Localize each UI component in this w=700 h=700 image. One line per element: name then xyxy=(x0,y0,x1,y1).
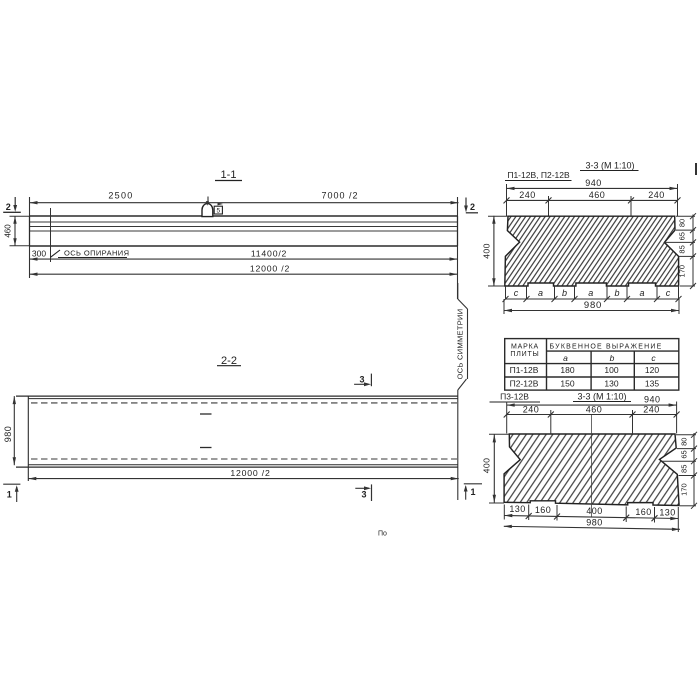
svg-text:240: 240 xyxy=(519,190,536,200)
svg-text:300: 300 xyxy=(32,249,46,259)
svg-text:2: 2 xyxy=(6,202,11,212)
svg-text:980: 980 xyxy=(584,300,602,311)
svg-text:160: 160 xyxy=(535,505,551,515)
svg-text:400: 400 xyxy=(481,458,491,474)
svg-text:240: 240 xyxy=(643,405,660,415)
svg-text:a: a xyxy=(563,353,568,363)
svg-text:По: По xyxy=(378,531,387,538)
svg-text:b: b xyxy=(562,288,567,298)
svg-text:130: 130 xyxy=(509,504,525,514)
svg-text:5: 5 xyxy=(216,208,220,215)
svg-text:1: 1 xyxy=(7,490,12,500)
svg-text:460: 460 xyxy=(586,405,603,415)
svg-text:c: c xyxy=(514,288,519,298)
svg-text:940: 940 xyxy=(585,178,602,188)
svg-text:980: 980 xyxy=(586,517,603,527)
svg-text:b: b xyxy=(610,353,615,363)
svg-text:c: c xyxy=(651,353,656,363)
svg-text:12000 /2: 12000 /2 xyxy=(250,264,290,274)
svg-text:МАРКА: МАРКА xyxy=(511,343,539,350)
svg-text:12000 /2: 12000 /2 xyxy=(230,468,270,478)
svg-text:БУКВЕННОЕ ВЫРАЖЕНИЕ: БУКВЕННОЕ ВЫРАЖЕНИЕ xyxy=(550,343,663,350)
svg-text:a: a xyxy=(588,288,593,298)
svg-text:a: a xyxy=(538,288,543,298)
svg-text:1: 1 xyxy=(470,487,475,497)
svg-text:240: 240 xyxy=(523,405,540,415)
svg-text:3: 3 xyxy=(359,375,364,385)
svg-text:80: 80 xyxy=(678,219,687,227)
svg-text:130: 130 xyxy=(604,378,618,388)
svg-text:170: 170 xyxy=(678,265,687,278)
svg-text:460: 460 xyxy=(589,190,606,200)
svg-text:ОСЬ ОПИРАНИЯ: ОСЬ ОПИРАНИЯ xyxy=(64,249,129,258)
svg-text:100: 100 xyxy=(604,365,618,375)
svg-text:180: 180 xyxy=(560,365,574,375)
svg-text:1-1: 1-1 xyxy=(221,169,237,181)
svg-text:980: 980 xyxy=(3,426,13,443)
svg-text:460: 460 xyxy=(4,224,13,238)
svg-text:170: 170 xyxy=(679,483,688,496)
svg-text:П1-12В: П1-12В xyxy=(510,365,539,375)
svg-text:85: 85 xyxy=(679,465,688,473)
svg-text:160: 160 xyxy=(635,507,651,517)
svg-text:3-3 (М 1:10): 3-3 (М 1:10) xyxy=(577,392,626,402)
svg-text:120: 120 xyxy=(645,365,659,375)
svg-text:240: 240 xyxy=(648,190,665,200)
svg-text:135: 135 xyxy=(645,378,659,388)
svg-text:c: c xyxy=(666,288,671,298)
svg-text:2500: 2500 xyxy=(108,191,133,201)
svg-text:b: b xyxy=(614,288,619,298)
svg-text:400: 400 xyxy=(481,243,491,259)
svg-text:П3-12В: П3-12В xyxy=(500,392,529,402)
svg-text:85: 85 xyxy=(678,245,687,253)
svg-text:11400/2: 11400/2 xyxy=(251,249,287,259)
svg-text:П1-12В, П2-12В: П1-12В, П2-12В xyxy=(507,170,570,180)
svg-text:7000 /2: 7000 /2 xyxy=(321,191,358,201)
svg-text:2: 2 xyxy=(470,202,475,212)
svg-text:130: 130 xyxy=(659,508,675,518)
svg-text:ОСЬ СИММЕТРИИ: ОСЬ СИММЕТРИИ xyxy=(456,309,465,380)
svg-text:80: 80 xyxy=(679,438,688,446)
svg-text:65: 65 xyxy=(678,232,687,240)
svg-text:940: 940 xyxy=(644,394,661,404)
svg-text:ПЛИТЫ: ПЛИТЫ xyxy=(510,351,539,358)
svg-text:П2-12В: П2-12В xyxy=(510,378,539,388)
svg-text:150: 150 xyxy=(560,378,574,388)
svg-text:a: a xyxy=(639,288,644,298)
svg-text:65: 65 xyxy=(679,450,688,458)
svg-text:400: 400 xyxy=(586,506,602,516)
svg-text:3: 3 xyxy=(361,490,366,500)
svg-text:3-3 (М 1:10): 3-3 (М 1:10) xyxy=(585,161,634,171)
